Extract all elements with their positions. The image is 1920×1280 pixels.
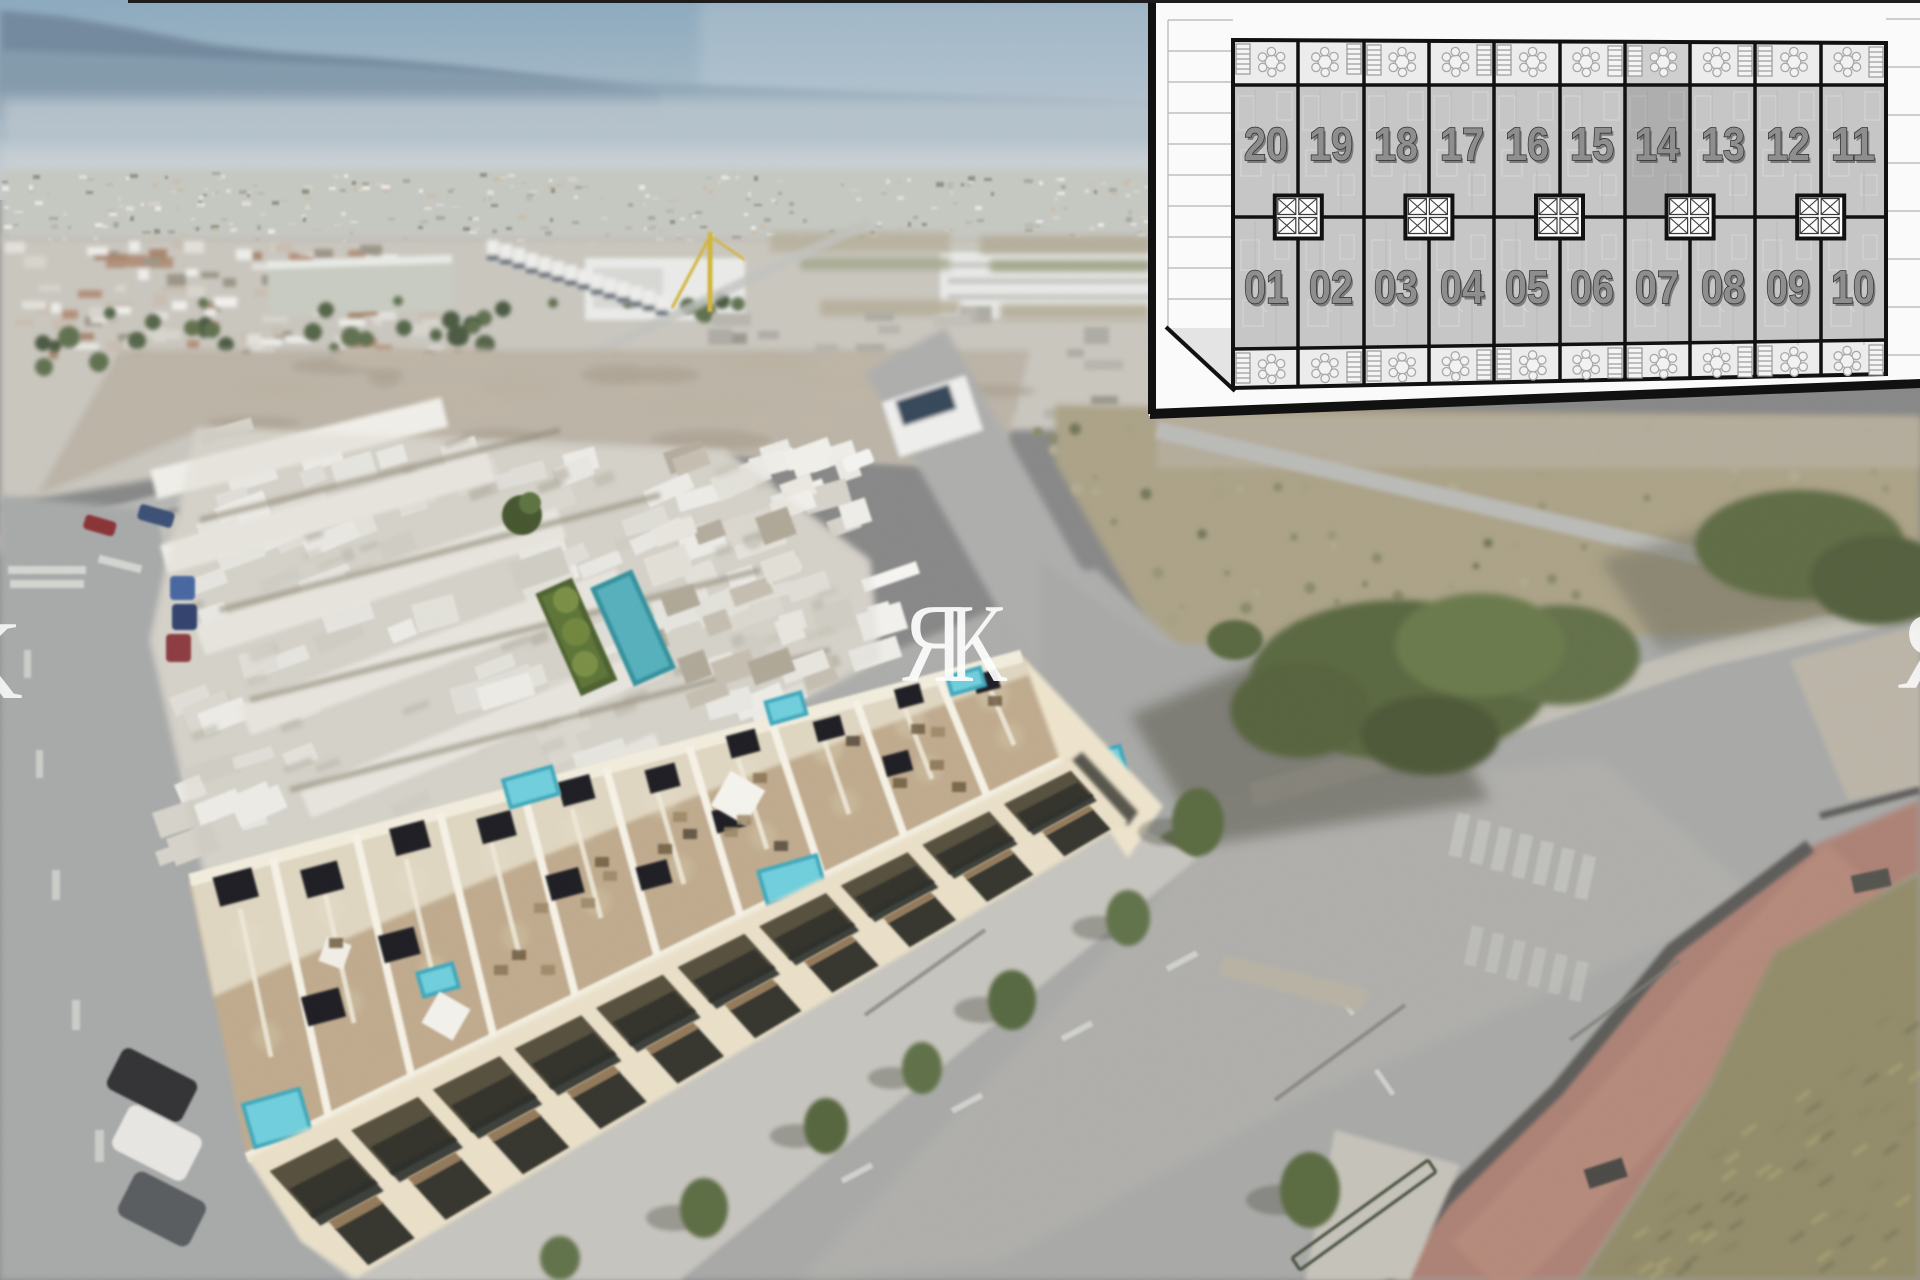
svg-text:06: 06 <box>1570 261 1614 313</box>
svg-text:08: 08 <box>1701 261 1745 313</box>
svg-text:19: 19 <box>1309 118 1353 170</box>
svg-text:09: 09 <box>1766 261 1810 313</box>
svg-text:17: 17 <box>1440 118 1484 170</box>
svg-text:11: 11 <box>1831 118 1875 170</box>
svg-text:13: 13 <box>1701 118 1745 170</box>
svg-text:20: 20 <box>1244 118 1288 170</box>
svg-text:02: 02 <box>1309 261 1353 313</box>
svg-text:05: 05 <box>1505 261 1549 313</box>
svg-text:15: 15 <box>1570 118 1614 170</box>
svg-text:14: 14 <box>1635 118 1679 170</box>
svg-text:12: 12 <box>1766 118 1810 170</box>
svg-text:10: 10 <box>1831 261 1875 313</box>
svg-text:18: 18 <box>1374 118 1418 170</box>
svg-text:01: 01 <box>1244 261 1288 313</box>
svg-text:07: 07 <box>1635 261 1679 313</box>
svg-text:04: 04 <box>1440 261 1484 313</box>
svg-text:16: 16 <box>1505 118 1549 170</box>
svg-text:03: 03 <box>1374 261 1418 313</box>
